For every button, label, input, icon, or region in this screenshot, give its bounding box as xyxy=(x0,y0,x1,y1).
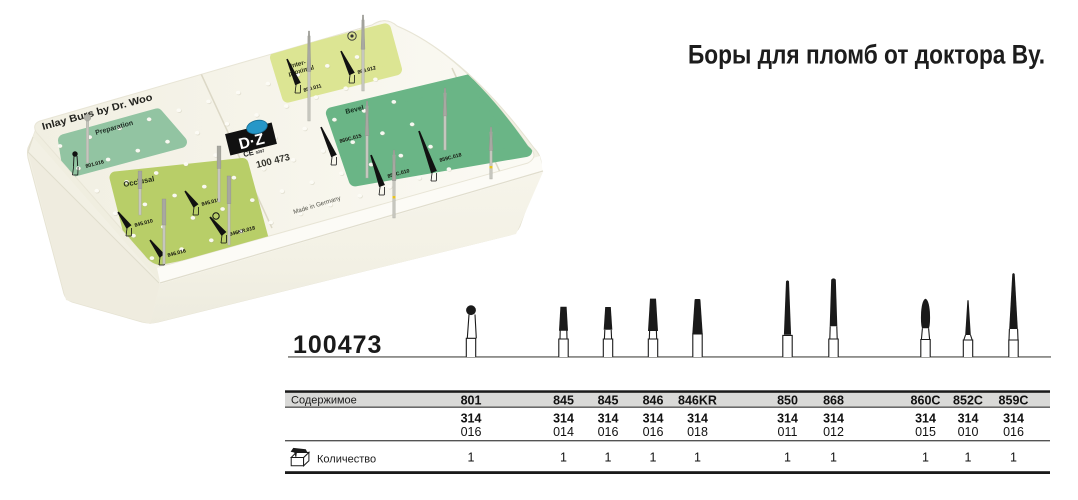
svg-text:868: 868 xyxy=(823,393,844,407)
svg-text:1: 1 xyxy=(922,451,929,465)
svg-text:846KR: 846KR xyxy=(678,393,717,407)
svg-text:314: 314 xyxy=(461,412,482,426)
svg-text:1: 1 xyxy=(605,451,612,465)
svg-text:014: 014 xyxy=(553,425,574,439)
svg-text:1: 1 xyxy=(830,451,837,465)
svg-text:850: 850 xyxy=(777,393,798,407)
svg-text:314: 314 xyxy=(687,412,708,426)
svg-text:1: 1 xyxy=(784,451,791,465)
svg-text:852C: 852C xyxy=(953,393,983,407)
svg-text:314: 314 xyxy=(598,412,619,426)
svg-text:314: 314 xyxy=(915,412,936,426)
svg-text:100473: 100473 xyxy=(293,331,382,359)
svg-text:860C: 860C xyxy=(911,393,941,407)
svg-text:016: 016 xyxy=(461,425,482,439)
svg-text:016: 016 xyxy=(1003,425,1024,439)
svg-text:Содержимое: Содержимое xyxy=(291,395,357,407)
svg-text:Боры для пломб от доктора Ву.: Боры для пломб от доктора Ву. xyxy=(688,40,1045,70)
svg-text:1: 1 xyxy=(560,451,567,465)
svg-text:314: 314 xyxy=(823,412,844,426)
svg-text:016: 016 xyxy=(643,425,664,439)
svg-text:1: 1 xyxy=(468,451,475,465)
svg-text:1: 1 xyxy=(965,451,972,465)
svg-text:314: 314 xyxy=(1003,412,1024,426)
svg-text:010: 010 xyxy=(958,425,979,439)
svg-text:016: 016 xyxy=(598,425,619,439)
svg-text:801: 801 xyxy=(461,393,482,407)
svg-text:859C: 859C xyxy=(999,393,1029,407)
svg-text:1: 1 xyxy=(650,451,657,465)
svg-text:314: 314 xyxy=(958,412,979,426)
svg-text:314: 314 xyxy=(553,412,574,426)
svg-text:012: 012 xyxy=(823,425,844,439)
svg-text:845: 845 xyxy=(598,393,619,407)
svg-text:314: 314 xyxy=(643,412,664,426)
svg-text:Количество: Количество xyxy=(317,454,376,466)
svg-text:845: 845 xyxy=(553,393,574,407)
svg-text:846: 846 xyxy=(643,393,664,407)
svg-text:1: 1 xyxy=(1010,451,1017,465)
svg-text:015: 015 xyxy=(915,425,936,439)
svg-text:018: 018 xyxy=(687,425,708,439)
svg-text:011: 011 xyxy=(778,425,798,439)
svg-text:1: 1 xyxy=(694,451,701,465)
svg-text:314: 314 xyxy=(777,412,798,426)
